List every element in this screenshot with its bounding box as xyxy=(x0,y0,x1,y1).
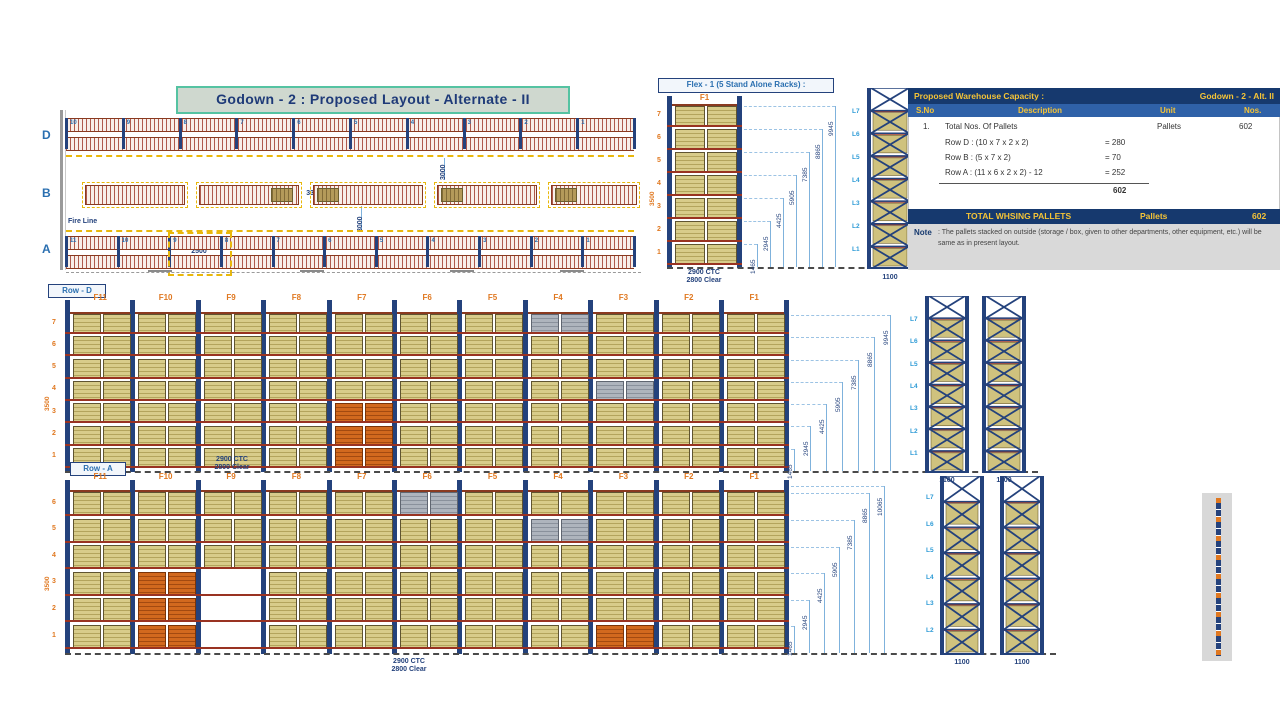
bay-label: F6 xyxy=(397,472,457,481)
dim-line xyxy=(809,152,810,267)
pallet xyxy=(495,545,523,568)
pallet xyxy=(727,625,755,648)
capacity-table-body: 1. Total Nos. Of Pallets Pallets 602 Row… xyxy=(908,117,1280,209)
pallet xyxy=(757,545,785,568)
pallet xyxy=(204,519,232,542)
pallet xyxy=(757,572,785,595)
plan-pallet-block xyxy=(441,188,463,202)
pallet xyxy=(234,545,262,568)
pallet xyxy=(365,519,393,542)
pallet xyxy=(531,403,559,422)
pallet xyxy=(204,381,232,400)
pallet xyxy=(73,572,101,595)
pallet xyxy=(400,492,428,515)
pallet xyxy=(596,625,624,648)
plan-view: D B A Fire Line 3300 2500 3000 3000 1098… xyxy=(60,110,650,275)
level-number: 4 xyxy=(52,385,56,392)
rack-post xyxy=(261,300,266,472)
pallet xyxy=(365,625,393,648)
dim-leader xyxy=(791,404,826,405)
pallet xyxy=(168,336,196,355)
pallet xyxy=(727,598,755,621)
pallet xyxy=(335,572,363,595)
rack-post xyxy=(130,300,135,472)
pallet xyxy=(103,336,131,355)
frame-level-label: L3 xyxy=(910,405,918,412)
pallet xyxy=(757,426,785,445)
pallet xyxy=(335,359,363,378)
pallet xyxy=(299,625,327,648)
plan-bay-number: 3 xyxy=(483,238,486,244)
pallet xyxy=(168,314,196,333)
ground-line xyxy=(65,653,1056,655)
capacity-table-columns: S.No Description Unit Nos. xyxy=(908,104,1280,117)
dim-leader xyxy=(791,573,824,574)
pallet xyxy=(626,625,654,648)
pallet xyxy=(662,381,690,400)
pallet xyxy=(626,572,654,595)
pallet xyxy=(675,152,705,172)
pallet xyxy=(465,381,493,400)
rack-beam xyxy=(65,444,789,446)
pallet xyxy=(73,403,101,422)
breakdown-row-a-value: = 252 xyxy=(1105,168,1125,177)
pallet xyxy=(561,598,589,621)
end-frame xyxy=(1000,476,1044,655)
pallet xyxy=(596,598,624,621)
frame-level-label: L6 xyxy=(910,338,918,345)
plan-bottom-line xyxy=(66,272,641,273)
pallet xyxy=(299,359,327,378)
pallet xyxy=(234,403,262,422)
dim-line xyxy=(770,221,771,267)
row-desc: Total Nos. Of Pallets xyxy=(945,122,1017,131)
plan-bay-number: 3 xyxy=(468,120,471,126)
plan-row-b-segment xyxy=(82,182,188,208)
rack-post xyxy=(667,96,672,268)
clearance-line xyxy=(66,155,634,157)
height-dim-label: 10065 xyxy=(877,498,884,516)
pallet xyxy=(757,359,785,378)
side-dim-label: 3500 xyxy=(44,396,51,410)
height-dim-label: 8865 xyxy=(815,145,822,159)
pallet xyxy=(204,426,232,445)
pallet xyxy=(495,381,523,400)
rack-post xyxy=(523,300,528,472)
pallet xyxy=(692,314,720,333)
pallet xyxy=(234,314,262,333)
pallet xyxy=(561,625,589,648)
pallet xyxy=(727,492,755,515)
bay-label: F1 xyxy=(724,472,784,481)
dim-line xyxy=(757,244,758,267)
pallet xyxy=(400,625,428,648)
breakdown-row-b: Row B : (5 x 7 x 2) xyxy=(945,153,1011,162)
dim-line xyxy=(858,360,859,472)
pallet xyxy=(73,625,101,648)
pallet xyxy=(675,244,705,264)
pallet xyxy=(269,403,297,422)
plan-bay-number: 7 xyxy=(240,120,243,126)
bay-label: F8 xyxy=(266,293,326,302)
plan-row-b-segment xyxy=(310,182,426,208)
frame-level-label: L2 xyxy=(852,223,860,230)
pallet xyxy=(727,545,755,568)
rack-beam xyxy=(667,125,742,127)
plan-bay-number: 5 xyxy=(354,120,357,126)
height-dim-label: 5905 xyxy=(789,191,796,205)
bay-label: F5 xyxy=(462,472,522,481)
pallet xyxy=(692,381,720,400)
height-dim-label: 1465 xyxy=(750,260,757,274)
pallet xyxy=(561,519,589,542)
pallet xyxy=(757,381,785,400)
frame-level-label: L4 xyxy=(926,574,934,581)
pallet xyxy=(234,492,262,515)
pallet xyxy=(269,492,297,515)
pallet xyxy=(561,545,589,568)
pallet xyxy=(73,492,101,515)
end-frame xyxy=(982,296,1026,473)
dim-leader xyxy=(791,360,858,361)
col-nos: Nos. xyxy=(1244,104,1261,117)
frame-level-label: L7 xyxy=(926,494,934,501)
pallet xyxy=(495,336,523,355)
pallet xyxy=(430,426,458,445)
pallet xyxy=(675,129,705,149)
plan-bay-number: 6 xyxy=(297,120,300,126)
fire-clearance-box xyxy=(168,232,232,276)
pallet xyxy=(626,314,654,333)
plan-row-b-segment xyxy=(434,182,540,208)
pallet xyxy=(561,314,589,333)
pallet xyxy=(465,359,493,378)
pallet xyxy=(269,545,297,568)
note-text: : The pallets stacked on outside (storag… xyxy=(938,228,1272,249)
pallet xyxy=(692,336,720,355)
plan-row-b-rack xyxy=(85,185,185,205)
pallet xyxy=(204,403,232,422)
bay-label: F8 xyxy=(266,472,326,481)
clearance-line xyxy=(66,230,634,232)
dim-leader xyxy=(791,337,874,338)
pallet xyxy=(168,519,196,542)
pallet xyxy=(531,314,559,333)
pallet xyxy=(335,314,363,333)
pallet xyxy=(465,572,493,595)
height-dim-label: 2945 xyxy=(802,615,809,629)
dim-line xyxy=(874,337,875,471)
height-dim-label: 7385 xyxy=(851,375,858,389)
plan-pallet-block xyxy=(555,188,577,202)
plan-row-a xyxy=(66,236,634,250)
pallet xyxy=(103,545,131,568)
rack-beam xyxy=(65,377,789,379)
capacity-table-total-bar: TOTAL WHSING PALLETS Pallets 602 xyxy=(908,209,1280,224)
pallet xyxy=(495,625,523,648)
bay-label: F2 xyxy=(659,472,719,481)
pallet xyxy=(269,336,297,355)
pallet xyxy=(596,336,624,355)
plan-post xyxy=(272,236,275,267)
pallet xyxy=(138,492,166,515)
pallet xyxy=(561,572,589,595)
pallet xyxy=(335,426,363,445)
end-frame xyxy=(940,476,984,655)
frame-level-label: L7 xyxy=(910,316,918,323)
dim-line xyxy=(854,520,855,653)
bay-label: F6 xyxy=(397,293,457,302)
plan-post xyxy=(576,118,579,149)
level-number: 3 xyxy=(52,408,56,415)
pallet xyxy=(707,175,737,195)
side-dim-label: 3500 xyxy=(44,576,51,590)
pallet xyxy=(561,381,589,400)
rack-post xyxy=(784,300,789,472)
pallet xyxy=(495,314,523,333)
rack-post xyxy=(327,300,332,472)
rack-beam xyxy=(667,171,742,173)
pallet xyxy=(626,359,654,378)
dim-line xyxy=(809,600,810,653)
bay-label: F3 xyxy=(593,293,653,302)
pallet xyxy=(692,426,720,445)
pallet xyxy=(531,336,559,355)
pallet xyxy=(365,572,393,595)
level-number: 7 xyxy=(52,319,56,326)
pallet xyxy=(400,403,428,422)
plan-bay-number: 1 xyxy=(586,238,589,244)
dim-leader xyxy=(791,315,890,316)
plan-bay-number: 8 xyxy=(184,120,187,126)
pallet xyxy=(138,598,166,621)
pallet xyxy=(662,359,690,378)
pallet xyxy=(626,381,654,400)
dim-line xyxy=(783,198,784,267)
pallet xyxy=(727,381,755,400)
level-number: 2 xyxy=(657,226,661,233)
level-number: 1 xyxy=(657,249,661,256)
bay-label: F4 xyxy=(528,472,588,481)
pallet xyxy=(400,598,428,621)
dim-line xyxy=(822,129,823,267)
dim-leader xyxy=(744,152,809,153)
pallet xyxy=(757,314,785,333)
pallet xyxy=(692,625,720,648)
pallet xyxy=(692,403,720,422)
pallet xyxy=(168,598,196,621)
pallet xyxy=(269,598,297,621)
pallet xyxy=(234,381,262,400)
pallet xyxy=(465,545,493,568)
plan-post xyxy=(426,236,429,267)
pallet xyxy=(365,314,393,333)
pallet xyxy=(727,519,755,542)
flex-title: Flex - 1 (5 Stand Alone Racks) : xyxy=(658,78,834,93)
pallet xyxy=(662,572,690,595)
level-number: 7 xyxy=(657,111,661,118)
level-number: 5 xyxy=(657,157,661,164)
height-dim-label: 7385 xyxy=(802,168,809,182)
plan-row-a-label: A xyxy=(42,242,51,256)
pallet xyxy=(335,381,363,400)
pallet xyxy=(335,336,363,355)
pallet xyxy=(757,336,785,355)
pallet xyxy=(596,359,624,378)
height-dim-label: 5905 xyxy=(832,562,839,576)
pallet xyxy=(465,336,493,355)
breakdown-row-d: Row D : (10 x 7 x 2 x 2) xyxy=(945,138,1029,147)
pallet xyxy=(626,519,654,542)
plan-bay-number: 2 xyxy=(535,238,538,244)
pallet xyxy=(465,598,493,621)
pallet xyxy=(299,381,327,400)
pallet xyxy=(430,545,458,568)
rack-beam xyxy=(65,541,789,543)
plan-bay-number: 10 xyxy=(122,238,129,244)
plan-post xyxy=(463,118,466,149)
pallet xyxy=(561,426,589,445)
rack-beam xyxy=(667,194,742,196)
sum-line xyxy=(939,183,1149,184)
pallet xyxy=(400,572,428,595)
pallet xyxy=(73,314,101,333)
pallet xyxy=(626,492,654,515)
dim-leader xyxy=(744,129,822,130)
pallet xyxy=(365,336,393,355)
pallet xyxy=(365,381,393,400)
side-dim-label: 3500 xyxy=(649,191,656,205)
plan-bay-number: 7 xyxy=(277,238,280,244)
rack-post xyxy=(588,300,593,472)
pallet xyxy=(596,572,624,595)
bay-label: F5 xyxy=(462,293,522,302)
pallet xyxy=(430,381,458,400)
dim-leader xyxy=(744,244,757,245)
capacity-table: Proposed Warehouse Capacity : Godown - 2… xyxy=(908,88,1280,270)
frame-level-label: L1 xyxy=(852,246,860,253)
frame-level-label: L2 xyxy=(926,627,934,634)
pallet xyxy=(138,426,166,445)
pallet xyxy=(531,359,559,378)
pallet xyxy=(596,403,624,422)
pallet xyxy=(138,519,166,542)
pallet xyxy=(335,598,363,621)
pallet xyxy=(561,359,589,378)
wall-line xyxy=(60,110,63,270)
rack-beam xyxy=(65,594,789,596)
pallet xyxy=(73,359,101,378)
pallet xyxy=(400,359,428,378)
dim-leader xyxy=(791,426,810,427)
pallet xyxy=(495,359,523,378)
height-dim-label: 1465 xyxy=(787,642,794,656)
pallet xyxy=(204,314,232,333)
pallet xyxy=(73,336,101,355)
level-number: 2 xyxy=(52,605,56,612)
plan-pallet-block xyxy=(317,188,339,202)
pallet xyxy=(138,572,166,595)
end-frame xyxy=(925,296,969,473)
pallet xyxy=(299,598,327,621)
drawing-canvas: Godown - 2 : Proposed Layout - Alternate… xyxy=(0,0,1280,720)
pallet xyxy=(138,545,166,568)
pallet xyxy=(662,314,690,333)
capacity-header-right: Godown - 2 - Alt. II xyxy=(1200,88,1274,104)
pallet xyxy=(561,336,589,355)
pallet xyxy=(73,381,101,400)
capacity-header-left: Proposed Warehouse Capacity : xyxy=(914,88,1044,104)
pallet xyxy=(269,625,297,648)
pallet xyxy=(495,403,523,422)
plan-bay-number: 10 xyxy=(70,120,77,126)
pallet xyxy=(707,129,737,149)
pallet xyxy=(596,381,624,400)
frame-level-label: L6 xyxy=(852,131,860,138)
rack-beam xyxy=(65,399,789,401)
frame-level-label: L5 xyxy=(926,547,934,554)
pallet xyxy=(531,572,559,595)
pallet xyxy=(675,106,705,126)
height-dim-label: 2945 xyxy=(763,237,770,251)
pallet xyxy=(430,314,458,333)
pallet xyxy=(103,519,131,542)
capacity-table-header: Proposed Warehouse Capacity : Godown - 2… xyxy=(908,88,1280,104)
level-number: 6 xyxy=(52,341,56,348)
pallet xyxy=(400,314,428,333)
pallet xyxy=(204,359,232,378)
bay-label: F9 xyxy=(201,472,261,481)
pallet xyxy=(269,314,297,333)
pallet xyxy=(596,426,624,445)
pallet xyxy=(103,598,131,621)
plan-post xyxy=(375,236,378,267)
pallet xyxy=(234,336,262,355)
dim-leader xyxy=(744,221,770,222)
pallet xyxy=(531,519,559,542)
frame-level-label: L3 xyxy=(852,200,860,207)
rack-beam xyxy=(667,148,742,150)
pallet xyxy=(168,545,196,568)
end-frame xyxy=(867,88,913,269)
rack-post xyxy=(737,96,742,268)
row-a-bottom-dim: 2900 CTC 2800 Clear xyxy=(364,658,454,675)
pallet xyxy=(662,519,690,542)
pallet xyxy=(400,426,428,445)
rack-beam xyxy=(65,514,789,516)
dim-line xyxy=(796,175,797,267)
row-sno: 1. xyxy=(923,122,930,131)
pallet xyxy=(465,519,493,542)
pallet xyxy=(365,359,393,378)
note-label: Note xyxy=(914,228,932,237)
pallet xyxy=(204,492,232,515)
breakdown-row-b-value: = 70 xyxy=(1105,153,1121,162)
plan-post xyxy=(633,236,636,267)
pallet xyxy=(531,625,559,648)
plan-row-b-segment xyxy=(548,182,640,208)
rack-post xyxy=(392,300,397,472)
total-unit: Pallets xyxy=(1140,209,1167,224)
pallet xyxy=(707,221,737,241)
pallet xyxy=(73,426,101,445)
height-dim-label: 9945 xyxy=(828,122,835,136)
pallet xyxy=(465,492,493,515)
pallet xyxy=(531,598,559,621)
level-number: 3 xyxy=(657,203,661,210)
pallet xyxy=(299,314,327,333)
height-dim-label: 8865 xyxy=(862,509,869,523)
